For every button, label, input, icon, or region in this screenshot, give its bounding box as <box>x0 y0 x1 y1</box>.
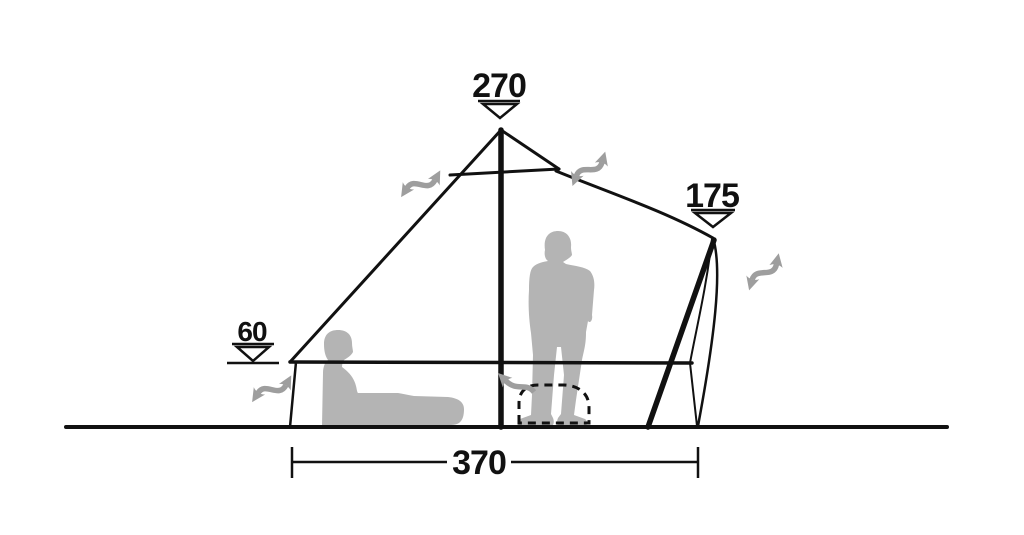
floor-width-label: 370 <box>452 444 506 482</box>
rear-wall-foot-line <box>690 363 697 426</box>
triangle-down-icon <box>483 104 517 118</box>
wavy-single-arrow-icon <box>506 381 534 392</box>
people-silhouettes <box>322 231 594 427</box>
standing-person-silhouette <box>518 231 594 427</box>
peak-height-marker <box>478 101 520 118</box>
triangle-down-icon <box>695 213 731 227</box>
mid-height-line <box>290 362 692 363</box>
wavy-double-arrow-icon <box>258 385 286 392</box>
peak-cap-right-edge <box>501 130 559 169</box>
rear-height-marker <box>691 210 735 227</box>
tent-dimension-diagram: 270 175 60 <box>0 0 1024 535</box>
seated-person-silhouette <box>322 330 464 426</box>
tent-cross-section-canvas: 270 175 60 <box>0 0 1024 535</box>
peak-height-label: 270 <box>472 67 526 105</box>
side-wall-height-marker <box>227 344 279 363</box>
left-roofline <box>290 130 501 362</box>
wavy-double-arrow-icon <box>750 264 778 279</box>
wavy-double-arrow-icon <box>407 180 435 187</box>
side-wall-height-label: 60 <box>237 316 267 347</box>
triangle-down-icon <box>237 347 269 361</box>
measurement-annotations: 270 175 60 <box>227 67 739 482</box>
wavy-double-arrow-icon <box>575 162 604 175</box>
left-wall-line <box>290 362 296 427</box>
